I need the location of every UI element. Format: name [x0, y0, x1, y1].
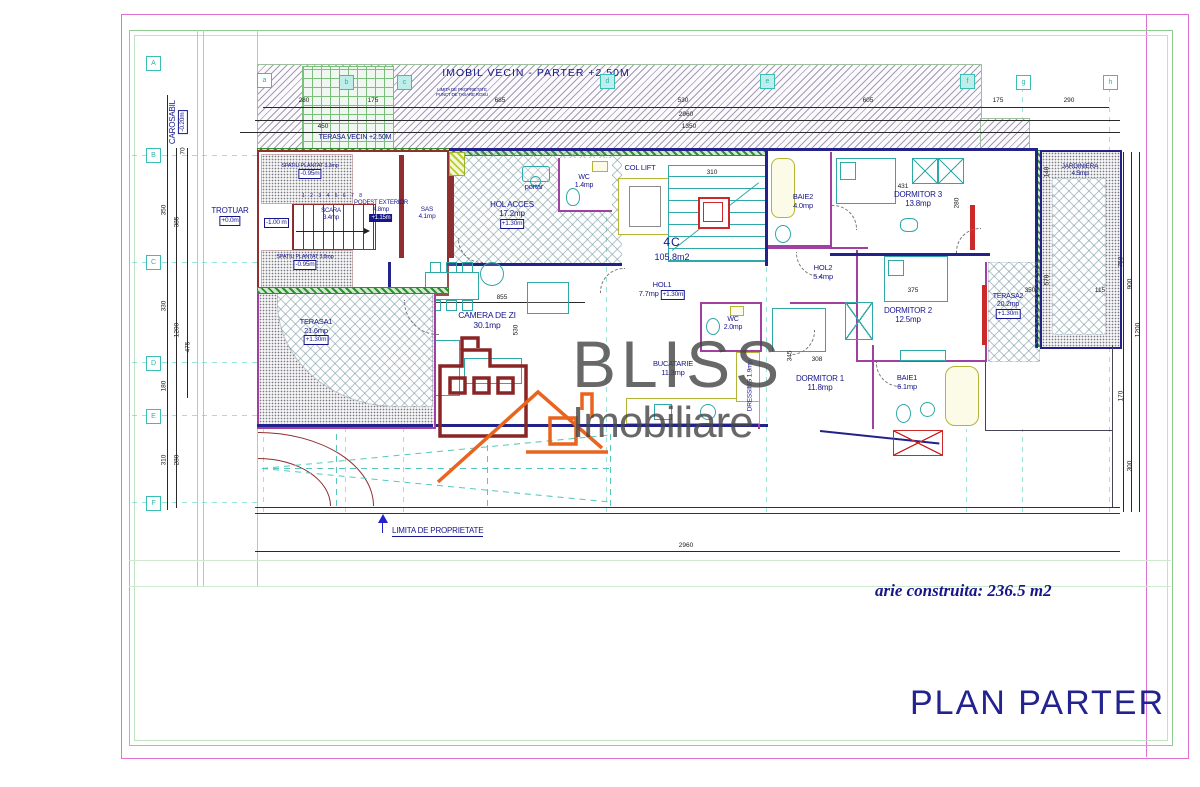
decoration: JARDINIERA	[1062, 163, 1099, 170]
unit-label: 4C105.8m2	[654, 236, 689, 264]
room-label-dormitor2: DORMITOR 212.5mp	[884, 306, 932, 324]
decoration: DORMITOR 1	[796, 374, 844, 383]
axis-bubble: a	[257, 73, 272, 88]
axis-bubble: h	[1103, 75, 1118, 90]
decoration: -0.20m	[178, 111, 188, 134]
kitchen-sink	[700, 404, 716, 420]
site-boundary-line	[255, 507, 1120, 508]
stair-level-label: -1.00 m	[264, 218, 289, 228]
chair	[900, 218, 918, 232]
dim: 570	[1044, 275, 1051, 286]
decoration	[255, 120, 1120, 121]
axis-bubble: F	[146, 496, 161, 511]
axis-bubble: B	[146, 148, 161, 163]
dim: 431	[898, 183, 909, 190]
toilet	[896, 404, 911, 423]
room-label-hol2: HOL25.4mp	[813, 264, 833, 281]
property-limit-label: LIMITA DE PROPRIETATE	[392, 526, 483, 537]
decoration: DORMITOR 3	[894, 190, 942, 199]
axis-bubble: f	[960, 74, 975, 89]
dim: 685	[495, 97, 506, 104]
room-label-dressing: DRESSING 1.9mp	[746, 360, 753, 411]
neighbor-terrace-label: TERASA VECIN +2.50M	[319, 134, 392, 142]
decoration: 4.8mp	[373, 207, 389, 213]
decoration	[498, 378, 513, 393]
dim: 290	[1064, 97, 1075, 104]
decoration: SPATIU PLANTAT	[281, 163, 323, 169]
decoration: 5.4mp	[813, 272, 833, 281]
entry-mat	[449, 152, 465, 176]
decoration: +1.15m	[370, 214, 393, 222]
lift-cab	[629, 186, 661, 227]
decoration: 4.1mp	[418, 213, 435, 220]
decoration	[888, 260, 904, 276]
decoration	[985, 362, 986, 430]
axis-bubble: D	[146, 356, 161, 371]
decoration: PODEST EXTERIOR	[354, 200, 408, 206]
decoration	[382, 523, 383, 533]
decoration	[255, 551, 1120, 552]
dim: 310	[161, 455, 168, 466]
dim: 180	[161, 381, 168, 392]
axis-bubble: d	[600, 74, 615, 89]
room-label-baie2: BAIE24.0mp	[793, 193, 813, 210]
stair-numbers: 1 2 3 4 5 6 7 8	[302, 194, 364, 200]
decoration: 3.3mp	[324, 163, 338, 169]
decoration	[830, 152, 832, 247]
dim: 345	[787, 351, 794, 362]
dim: 175	[993, 97, 1004, 104]
decoration: TROTUAR	[211, 206, 248, 215]
dim: 175	[368, 97, 379, 104]
dim: 1200	[174, 323, 181, 337]
dim: 375	[908, 287, 919, 294]
bathtub	[771, 158, 795, 218]
bench	[900, 350, 946, 361]
decoration	[446, 262, 457, 273]
dim: 530	[678, 97, 689, 104]
site-green-line	[129, 560, 1171, 561]
decoration: CAMERA DE ZI	[458, 310, 516, 320]
decoration: CAROSABIL	[168, 100, 177, 144]
dim: 300	[1127, 461, 1134, 472]
dim: 350	[161, 205, 168, 216]
property-limit-arrow	[378, 514, 388, 523]
decoration	[982, 285, 987, 345]
decoration: WC	[727, 316, 738, 323]
toilet	[566, 188, 580, 206]
decoration: 21.6mp	[304, 326, 328, 335]
dim: 140	[1044, 167, 1051, 178]
sideboard	[527, 282, 569, 314]
decoration: TERASA2	[993, 293, 1024, 300]
axis-bubble: E	[146, 409, 161, 424]
decoration: -1.00 m	[264, 218, 289, 228]
decoration	[872, 345, 874, 429]
decoration: 13.8mp	[905, 199, 930, 208]
dim: 855	[497, 294, 508, 301]
room-label-terasa2: TERASA220.2mp+1.30m	[993, 293, 1024, 319]
decoration: WC	[578, 174, 589, 181]
decoration	[582, 394, 592, 418]
decoration	[263, 107, 1109, 108]
dim: 280	[954, 198, 961, 209]
axis-bubble: C	[146, 255, 161, 270]
decoration: 3.8mp	[319, 254, 333, 260]
wardrobe	[938, 158, 964, 184]
decoration: 12.5mp	[895, 315, 920, 324]
property-note: LIMITA DE PROPRIETATEPUNCT DE TASARE ROS…	[436, 87, 488, 98]
room-label-wc2: WC2.0mp	[724, 316, 742, 332]
dim: 1200	[1135, 323, 1142, 337]
axis-bubble: e	[760, 74, 775, 89]
decoration: DRESSING	[746, 379, 753, 411]
room-label-spatiu-plantat-1: SPATIU PLANTAT 3.3mp-0.95m	[281, 163, 338, 179]
dim: 70	[180, 147, 187, 154]
axis-bubble: g	[1016, 75, 1031, 90]
dim-total: 1350	[682, 123, 696, 130]
wardrobe	[845, 302, 873, 340]
dim: 475	[185, 342, 192, 353]
dim: 310	[707, 169, 718, 176]
decoration: 3.4mp	[323, 215, 339, 221]
decoration: 7.7mp	[639, 289, 659, 298]
decoration: -0.95m	[293, 260, 316, 270]
decoration: 1.9mp	[746, 360, 753, 377]
decoration: SPATIU PLANTAT	[276, 254, 318, 260]
decoration: 1.4mp	[575, 182, 593, 189]
decoration: 30.1mp	[473, 320, 500, 330]
decoration	[446, 300, 457, 311]
decoration	[1131, 152, 1132, 512]
decoration: +1.30m	[500, 219, 525, 229]
dim: 750	[1118, 257, 1125, 268]
decoration	[1112, 345, 1113, 508]
decoration	[187, 148, 188, 398]
decoration: SAS	[421, 206, 433, 213]
decoration: +1.30m	[661, 290, 686, 300]
window-box	[893, 430, 943, 456]
room-label-wc1: WC1.4mp	[575, 174, 593, 190]
dim: 350	[1025, 287, 1036, 294]
decoration: LIMITA DE PROPRIETATE	[437, 87, 487, 92]
decoration: 4.5mp	[1071, 170, 1088, 177]
dim: 170	[1118, 391, 1125, 402]
round-table	[480, 262, 504, 286]
decoration	[462, 262, 473, 273]
decoration	[768, 247, 868, 249]
room-label-sas: SAS4.1mp	[418, 206, 435, 221]
room-label-hol-acces: HOL ACCES17.2mp+1.30m	[490, 200, 534, 229]
sink	[920, 402, 935, 417]
sidewalk-label: TROTUAR+0.0m	[211, 206, 248, 226]
decoration: +1.30m	[304, 335, 329, 345]
decoration	[703, 202, 723, 222]
room-label-baie1: BAIE16.1mp	[897, 374, 917, 391]
toilet	[706, 318, 720, 335]
decoration	[1052, 178, 1106, 335]
decoration	[240, 132, 1120, 133]
dim: 115	[1095, 287, 1105, 294]
decoration: 11.8mp	[808, 383, 833, 392]
decoration: +0.0m	[219, 216, 240, 226]
decoration: 105.8m2	[654, 252, 689, 262]
decoration	[257, 424, 433, 427]
room-label-camera-de-zi: CAMERA DE ZI30.1mp	[458, 311, 516, 331]
decoration: DORMITOR 2	[884, 306, 932, 315]
stove	[654, 404, 672, 420]
dim: 605	[863, 97, 874, 104]
room-label-dormitor3: DORMITOR 313.8mp	[894, 190, 942, 208]
room-label-bucatarie: BUCATARIE11.3mp	[653, 360, 693, 377]
decoration: 4C	[663, 235, 680, 249]
decoration: PUNCT DE TASARE ROSU	[436, 92, 488, 97]
decoration: HOL ACCES	[490, 200, 534, 209]
decoration	[462, 338, 478, 350]
decoration: 20.2mp	[997, 301, 1019, 308]
built-area-note: arie construita: 236.5 m2	[875, 581, 1052, 601]
room-label-spatiu-plantat-2: SPATIU PLANTAT 3.8mp-0.95m	[276, 254, 333, 270]
decoration	[336, 432, 337, 506]
decoration	[257, 287, 449, 294]
axis-bubble: A	[146, 56, 161, 71]
decoration	[440, 338, 526, 436]
decoration	[296, 231, 368, 232]
toilet	[775, 225, 791, 243]
dim-total: 2960	[679, 542, 693, 549]
dim: 385	[174, 217, 181, 228]
decoration: +1.30m	[996, 309, 1021, 319]
room-label-scara: SCARA3.4mp	[321, 208, 341, 222]
axis-bubble: b	[339, 75, 354, 90]
decoration: 2.0mp	[724, 324, 742, 331]
decoration	[985, 430, 1113, 431]
room-label-col-lift: COL LIFT	[624, 164, 655, 173]
dim: 308	[812, 356, 823, 363]
neighbor-building-step	[980, 118, 1030, 152]
decoration: 17.2mp	[499, 209, 524, 218]
decoration: -0.95m	[298, 169, 321, 179]
room-label-jardiniera: JARDINIERA4.5mp	[1062, 163, 1099, 178]
dim-total: 2960	[679, 111, 693, 118]
sink	[730, 306, 744, 316]
dim: 330	[161, 301, 168, 312]
road-label: CAROSABIL-0.20m	[168, 100, 188, 144]
wardrobe	[912, 158, 938, 184]
room-label-hol1: HOL17.7mp +1.30m	[639, 281, 685, 300]
decoration: 4.0mp	[793, 201, 813, 210]
dim: 900	[1127, 279, 1134, 290]
room-label-portar: portar	[525, 183, 543, 192]
decoration: SCARA	[321, 208, 341, 214]
decoration: 11.3mp	[661, 368, 684, 377]
decoration	[840, 162, 856, 180]
axis-bubble: c	[397, 75, 412, 90]
decoration	[474, 378, 489, 393]
decoration	[430, 262, 441, 273]
floor-plan-canvas: IMOBIL VECIN - PARTER +2.50M LIMITA DE P…	[0, 0, 1200, 787]
room-label-podest: PODEST EXTERIOR4.8mp+1.15m	[354, 200, 408, 222]
decoration	[1123, 152, 1124, 512]
room-label-dormitor1: DORMITOR 111.8mp	[796, 374, 844, 392]
decoration: 6.1mp	[897, 382, 917, 391]
dim: 280	[174, 455, 181, 466]
plan-title: PLAN PARTER	[910, 684, 1165, 723]
dim: 450	[318, 123, 329, 130]
decoration	[450, 378, 465, 393]
bathtub-baie1	[945, 366, 979, 426]
dim: 280	[299, 97, 310, 104]
stair-direction-arrow	[364, 228, 370, 234]
room-label-terasa1: TERASA121.6mp+1.30m	[300, 318, 333, 345]
sink	[592, 161, 608, 172]
brand-logo	[430, 332, 640, 492]
